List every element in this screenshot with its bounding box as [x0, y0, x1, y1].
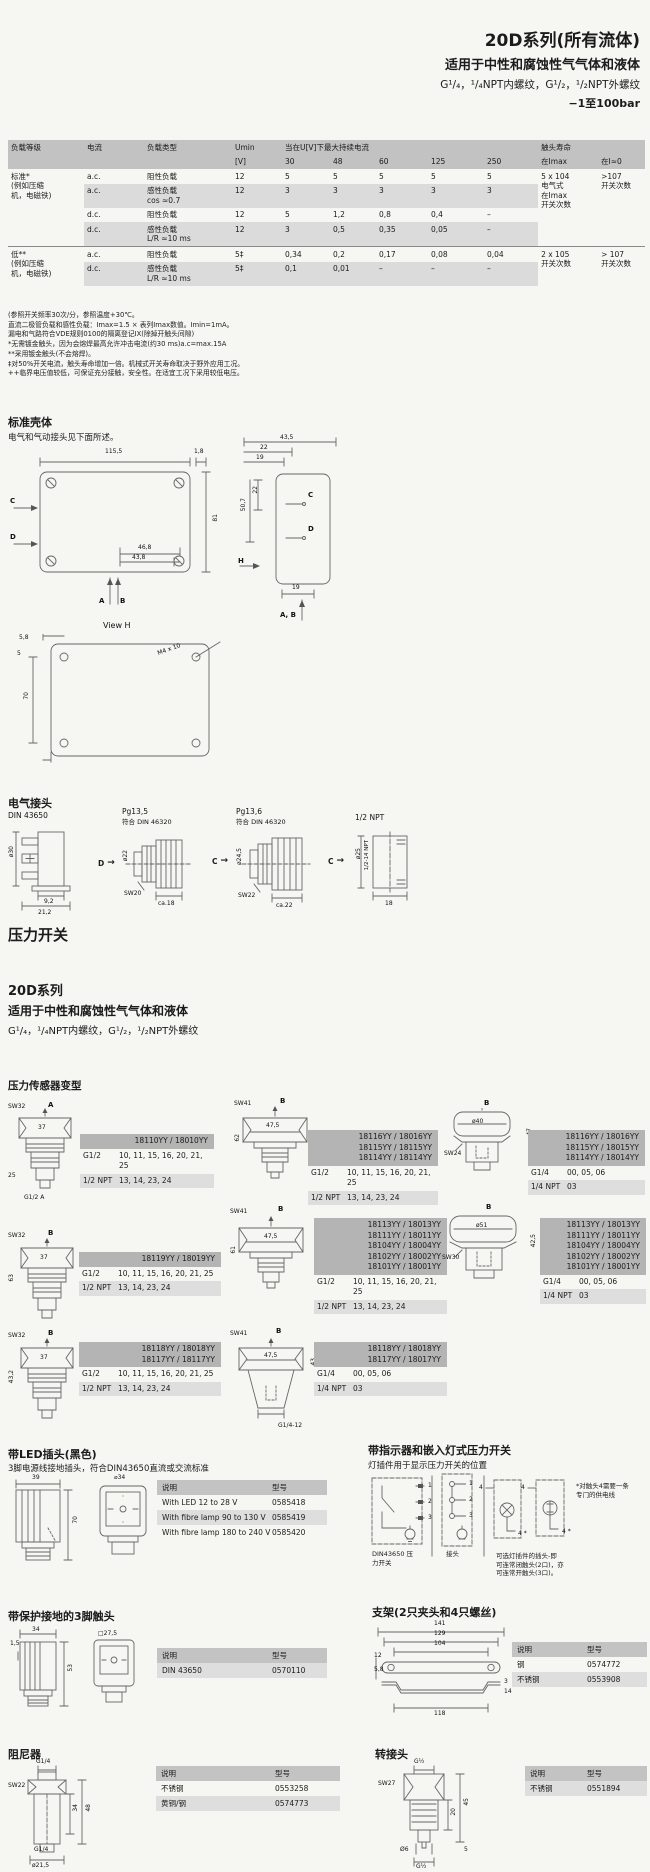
- thread-label: 1/4 NPT: [531, 1182, 567, 1193]
- dim: 53: [67, 1664, 74, 1672]
- bracket-heading: 支架(2只夹头和4只螺丝): [372, 1604, 496, 1620]
- range-codes: 13, 14, 23, 24: [119, 1176, 171, 1187]
- thread-label: 1/4 NPT: [317, 1384, 353, 1395]
- variant-row: 1/2 NPT13, 14, 23, 24: [79, 1281, 221, 1296]
- pressure-switch-heading: 压力开关: [8, 924, 68, 945]
- cell: 3: [330, 184, 376, 208]
- led-plug-drawing: 39 ⌀34 70: [8, 1474, 158, 1574]
- led-plug-table: 说明型号 With LED 12 to 28 V0585418 With fib…: [157, 1480, 327, 1540]
- variant-row: G1/210, 11, 15, 16, 20, 21, 25: [314, 1275, 447, 1300]
- footnote: 漏电和气路符合VDE规则0100的隔离登记IX(除掉开触头间隙): [8, 330, 244, 340]
- cell: 5: [376, 169, 428, 184]
- cell: –: [484, 222, 538, 247]
- sensor-variant-3-drawing: B ø40 SW24 47: [444, 1100, 532, 1186]
- cell: 5 x 104 电气式 在Imax 开关次数: [538, 169, 598, 247]
- thread-label: 1/2 NPT: [317, 1302, 353, 1313]
- cell: a.c.: [84, 247, 144, 262]
- dim: 63: [8, 1274, 15, 1282]
- table-header: 说明型号: [512, 1642, 647, 1657]
- pin-label: 1: [469, 1480, 473, 1487]
- col-current: 电流: [84, 140, 144, 169]
- dim: 1/2-14 NPT: [364, 840, 371, 870]
- table-header: 说明型号: [157, 1648, 327, 1663]
- connector-pg136-drawing: Pg13,6 符合 DIN 46320 ø24,5 SW22 ca.22: [236, 808, 324, 916]
- indicator-note-supply: *对触头4需要一条 专门的供电线: [576, 1482, 648, 1499]
- right-arrow-icon: [107, 858, 115, 868]
- dim: 22: [252, 486, 259, 494]
- part-number: 0553258: [275, 1784, 335, 1794]
- cell: 0,4: [428, 208, 484, 223]
- thread-label: G1/2: [82, 1369, 118, 1380]
- dim: 45: [463, 1798, 470, 1806]
- footnote: 直流二极管负载和感性负载：Imax=1.5 × 表列Imax数值。Imin=1m…: [8, 321, 244, 331]
- connector-title: DIN 43650: [8, 812, 48, 819]
- range-codes: 10, 11, 15, 16, 20, 21, 25: [119, 1151, 214, 1172]
- pin-label: 1: [428, 1482, 432, 1489]
- housing-side-drawing: 43,5 22 19 22 50,7 C D H 19 A, B: [238, 434, 350, 626]
- dim: 22: [260, 444, 268, 451]
- cell: 感性负载 L/R ≈10 ms: [144, 262, 232, 286]
- pin-label: 3: [469, 1512, 473, 1519]
- cell: –: [428, 262, 484, 286]
- footnote: **采用镀金触头(不会熔焊)。: [8, 350, 244, 360]
- dim: ⌀34: [114, 1474, 125, 1481]
- dim: 47,5: [264, 1233, 277, 1240]
- sensor-variant-7-drawing: SW32 B 37 43,2: [8, 1330, 84, 1436]
- range-codes: 13, 14, 23, 24: [118, 1283, 170, 1294]
- dim: SW20: [124, 890, 141, 897]
- dim: 141: [434, 1620, 445, 1627]
- dim: 18: [385, 900, 393, 907]
- part-number: 0574773: [275, 1799, 335, 1809]
- connector-title: Pg13,5: [122, 808, 148, 815]
- pin-label: 4 *: [518, 1530, 527, 1537]
- pin-label: 4: [479, 1484, 483, 1491]
- dim: ø30: [8, 846, 15, 857]
- cell: 12: [232, 222, 282, 247]
- cell: –: [484, 208, 538, 223]
- cell: 5‡: [232, 247, 282, 262]
- dim: SW22: [8, 1782, 25, 1789]
- section-label: A: [99, 598, 104, 605]
- dim: □27,5: [98, 1630, 117, 1637]
- dim: ø21,5: [32, 1862, 49, 1869]
- section-label: A, B: [280, 612, 296, 619]
- range-codes: 03: [579, 1291, 589, 1302]
- cell: 5: [282, 169, 330, 184]
- cell: 3: [376, 184, 428, 208]
- dim: 50,7: [240, 498, 247, 511]
- dim: 19: [292, 584, 300, 591]
- desc: 黄铜/钢: [161, 1799, 275, 1809]
- col-max-current: 当在U[V]下最大持续电流: [282, 140, 538, 155]
- col-contact-life: 触头寿命: [538, 140, 598, 155]
- indicator-note-contacts: 可选灯插件的插头-即 可连常闭触头(2口)，亦 可连常开触头(3口)。: [496, 1552, 608, 1578]
- model-numbers: 18110YY / 18010YY: [80, 1134, 214, 1149]
- cell: 12: [232, 208, 282, 223]
- variant-row: G1/400, 05, 06: [528, 1166, 645, 1181]
- port-label: B: [276, 1328, 281, 1335]
- dim: 37: [38, 1124, 46, 1131]
- dim: G½: [414, 1758, 424, 1765]
- cell: 3: [282, 222, 330, 247]
- col-v48: 48: [330, 155, 376, 170]
- cell: –: [376, 262, 428, 286]
- pin-label: 4 *: [562, 1528, 571, 1535]
- dim: 129: [434, 1630, 445, 1637]
- variant-row: 1/2 NPT13, 14, 23, 24: [308, 1191, 438, 1206]
- page-title: 20D系列(所有流体): [440, 26, 640, 51]
- thread-label: 1/2 NPT: [82, 1384, 118, 1395]
- pin-label: 2: [469, 1496, 473, 1503]
- page-subtitle: 适用于中性和腐蚀性气气体和液体: [440, 54, 640, 73]
- dim: G1/4: [34, 1846, 48, 1853]
- dim: 70: [23, 692, 30, 700]
- damper-table: 说明型号 不锈钢0553258 黄铜/钢0574773: [156, 1766, 340, 1811]
- connector-pg135-drawing: Pg13,5 符合 DIN 46320 ø22 SW20 ca.18: [122, 808, 210, 916]
- desc: With fibre lamp 90 to 130 V: [162, 1513, 272, 1523]
- variant-row: G1/210, 11, 15, 16, 20, 21, 25: [79, 1367, 221, 1382]
- dim: 48: [85, 1804, 92, 1812]
- indicator-label-switch: DIN43650 压 力开关: [372, 1550, 430, 1567]
- col-desc: 说明: [162, 1483, 272, 1493]
- cell: > 107 开关次数: [598, 247, 645, 286]
- variant-row: 1/4 NPT03: [540, 1289, 646, 1304]
- table-row: 不锈钢0551894: [525, 1781, 647, 1796]
- header-spacer: [598, 140, 645, 155]
- section-label: C: [212, 857, 218, 866]
- dim: 14: [504, 1688, 512, 1695]
- cell: 阻性负载: [144, 208, 232, 223]
- port-label: B: [280, 1098, 285, 1105]
- variant-row: G1/210, 11, 15, 16, 20, 21, 25: [79, 1267, 221, 1282]
- pressure-range: −1至100bar: [440, 95, 640, 111]
- desc: 钢: [517, 1660, 587, 1670]
- variant-5-table: 18113YY / 18013YY 18111YY / 18011YY 1810…: [314, 1218, 447, 1314]
- dim: G1/4: [36, 1758, 50, 1765]
- ground-contact-table: 说明型号 DIN 436500570110: [157, 1648, 327, 1678]
- cell: 5: [484, 169, 538, 184]
- table-row: 黄铜/钢0574773: [156, 1796, 340, 1811]
- led-plug-heading: 带LED插头(黑色): [8, 1446, 97, 1462]
- dim: ø40: [472, 1118, 483, 1125]
- dim: 118: [434, 1710, 445, 1717]
- dim: 46,8: [138, 544, 151, 551]
- sensor-variant-1-drawing: SW32 A 37 25 G1/2 A: [8, 1100, 82, 1210]
- dim: 3: [504, 1678, 508, 1685]
- cell: 2 x 105 开关次数: [538, 247, 598, 286]
- section-label: C: [308, 492, 313, 499]
- housing-sub: 电气和气动接头见下面所述。: [8, 431, 119, 443]
- range-codes: 10, 11, 15, 16, 20, 21, 25: [353, 1277, 447, 1298]
- variants-heading: 压力传感器变型: [8, 1078, 82, 1093]
- series-title: 20D系列: [8, 980, 63, 999]
- thread-label: 1/2 NPT: [82, 1283, 118, 1294]
- dim: 81: [212, 514, 219, 522]
- col-desc: 说明: [517, 1645, 587, 1655]
- part-number: 0570110: [272, 1666, 322, 1676]
- section-label: H: [238, 558, 244, 565]
- dim: 62: [234, 1134, 241, 1142]
- cell: 0,01: [330, 262, 376, 286]
- thread-label: G1/2: [317, 1277, 353, 1298]
- dim: 43,2: [8, 1370, 15, 1383]
- col-v60: 60: [376, 155, 428, 170]
- range-codes: 13, 14, 23, 24: [347, 1193, 399, 1204]
- col-v250: 250: [484, 155, 538, 170]
- part-number: 0553908: [587, 1675, 642, 1685]
- footnote: (参照开关频率30次/分，参照温度+30℃。: [8, 311, 244, 321]
- dim: 61: [230, 1246, 237, 1254]
- desc: With LED 12 to 28 V: [162, 1498, 272, 1508]
- table-header: 说明型号: [157, 1480, 327, 1495]
- indicator-heading: 带指示器和嵌入灯式压力开关: [368, 1442, 511, 1458]
- cell: 低** (例如压缩 机，电磁铁): [8, 247, 84, 286]
- dim: G½: [416, 1863, 426, 1870]
- range-codes: 10, 11, 15, 16, 20, 21, 25: [347, 1168, 438, 1189]
- table-row: 标准* (例如压缩 机，电磁铁) a.c. 阻性负载 12 5 5 5 5 5 …: [8, 169, 645, 184]
- cell: 0,5: [330, 222, 376, 247]
- led-plug-sub: 3脚电源线接地插头，符合DIN43650直流或交流标准: [8, 1462, 209, 1474]
- col-desc: 说明: [161, 1769, 275, 1779]
- desc: 不锈钢: [517, 1675, 587, 1685]
- variant-row: 1/4 NPT03: [528, 1180, 645, 1195]
- thread-types: G¹/₄，¹/₄NPT内螺纹，G¹/₂，¹/₂NPT外螺纹: [440, 77, 640, 92]
- dim: 115,5: [105, 448, 122, 455]
- dim: SW22: [238, 892, 255, 899]
- sensor-variant-6-drawing: B ø51 SW30 42,5: [442, 1204, 536, 1296]
- sensor-variant-4-drawing: SW32 B 37 63: [8, 1230, 84, 1336]
- section-label: D: [10, 534, 16, 541]
- right-arrow-icon: [337, 856, 345, 866]
- view-title: View H: [103, 622, 131, 629]
- dim: 47,5: [264, 1352, 277, 1359]
- dim: Ø6: [400, 1846, 409, 1853]
- variant-4-table: 18119YY / 18019YY G1/210, 11, 15, 16, 20…: [79, 1252, 221, 1296]
- cell: 5: [428, 169, 484, 184]
- dim: ø22: [122, 850, 129, 861]
- model-numbers: 18113YY / 18013YY 18111YY / 18011YY 1810…: [314, 1218, 447, 1275]
- cell: 3: [484, 184, 538, 208]
- dim: 34: [32, 1626, 40, 1633]
- table-row: With fibre lamp 90 to 130 V0585419: [157, 1510, 327, 1525]
- variant-1-table: 18110YY / 18010YY G1/210, 11, 15, 16, 20…: [80, 1134, 214, 1188]
- range-codes: 03: [567, 1182, 577, 1193]
- connector-din43650-drawing: DIN 43650 ø30 9,2 21,2: [8, 812, 106, 924]
- part-number: 0574772: [587, 1660, 642, 1670]
- dim: 43,8: [132, 554, 145, 561]
- thread-label: G1/4: [317, 1369, 353, 1380]
- indicator-label-plug: 接头: [446, 1550, 459, 1559]
- section-label: C: [328, 857, 334, 866]
- series-subtitle: 适用于中性和腐蚀性气气体和液体: [8, 1002, 188, 1019]
- variant-row: 1/2 NPT13, 14, 23, 24: [79, 1382, 221, 1397]
- col-at-i0: 在I≈0: [598, 155, 645, 170]
- thread-label: G1/4: [543, 1277, 579, 1288]
- range-codes: 13, 14, 23, 24: [353, 1302, 405, 1313]
- cell: d.c.: [84, 208, 144, 223]
- cell: 感性负载 cos ≈0.7: [144, 184, 232, 208]
- adapter-drawing: G½ SW27 45 20 Ø6 5 G½: [378, 1758, 478, 1870]
- model-numbers: 18113YY / 18013YY 18111YY / 18011YY 1810…: [540, 1218, 646, 1275]
- col-desc: 说明: [162, 1651, 272, 1661]
- section-label: D: [98, 859, 104, 868]
- cell: 0,04: [484, 247, 538, 262]
- port-label: B: [484, 1100, 489, 1107]
- port-label: B: [486, 1204, 491, 1211]
- dim: 25: [8, 1172, 16, 1179]
- dim: 19: [256, 454, 264, 461]
- dim: 37: [40, 1354, 48, 1361]
- dim: SW41: [230, 1208, 247, 1215]
- dim: 21,2: [38, 909, 51, 916]
- cell: 阻性负载: [144, 247, 232, 262]
- cell: 阻性负载: [144, 169, 232, 184]
- variant-8-table: 18118YY / 18018YY 18117YY / 18017YY G1/4…: [314, 1342, 447, 1396]
- range-codes: 00, 05, 06: [579, 1277, 617, 1288]
- range-codes: 10, 11, 15, 16, 20, 21, 25: [118, 1269, 213, 1280]
- table-row: With LED 12 to 28 V0585418: [157, 1495, 327, 1510]
- cell: 12: [232, 169, 282, 184]
- model-numbers: 18118YY / 18018YY 18117YY / 18017YY: [314, 1342, 447, 1367]
- datasheet-page: 20D系列(所有流体) 适用于中性和腐蚀性气气体和液体 G¹/₄，¹/₄NPT内…: [0, 0, 650, 1872]
- table-header: 说明型号: [525, 1766, 647, 1781]
- cell: d.c.: [84, 222, 144, 247]
- dim: ø25: [355, 848, 362, 859]
- variant-row: G1/400, 05, 06: [540, 1275, 646, 1290]
- cell: 0,35: [376, 222, 428, 247]
- variant-3-table: 18116YY / 18016YY 18115YY / 18015YY 1811…: [528, 1130, 645, 1195]
- dim: G1/2 A: [24, 1194, 44, 1201]
- cell: >107 开关次数: [598, 169, 645, 247]
- table-header-row: 负载等级 电流 负载类型 Umin 当在U[V]下最大持续电流 触头寿命: [8, 140, 645, 155]
- col-part: 型号: [275, 1769, 335, 1779]
- cell: 0,1: [282, 262, 330, 286]
- col-v125: 125: [428, 155, 484, 170]
- dim: SW24: [444, 1150, 461, 1157]
- table-row: 低** (例如压缩 机，电磁铁) a.c. 阻性负载 5‡ 0,34 0,2 0…: [8, 247, 645, 262]
- dim: ø24,5: [236, 848, 243, 865]
- section-arrow-c2: C: [328, 856, 344, 866]
- thread-label: G1/2: [82, 1269, 118, 1280]
- col-v30: 30: [282, 155, 330, 170]
- variant-6-table: 18113YY / 18013YY 18111YY / 18011YY 1810…: [540, 1218, 646, 1304]
- pin-label: 3: [428, 1514, 432, 1521]
- dim: 43,5: [280, 434, 293, 441]
- bracket-drawing: 141 129 104 12 5,8 3 14 118: [374, 1620, 516, 1720]
- section-label: B: [120, 598, 125, 605]
- adapter-table: 说明型号 不锈钢0551894: [525, 1766, 647, 1796]
- dim: 104: [434, 1640, 445, 1647]
- dim: 1,8: [194, 448, 204, 455]
- section-arrow-d: D: [98, 858, 115, 868]
- cell: 感性负载 L/R ≈10 ms: [144, 222, 232, 247]
- desc: DIN 43650: [162, 1666, 272, 1676]
- thread-label: 1/4 NPT: [543, 1291, 579, 1302]
- part-number: 0585419: [272, 1513, 322, 1523]
- port-label: B: [278, 1206, 283, 1213]
- cell: a.c.: [84, 169, 144, 184]
- table-row: 不锈钢0553258: [156, 1781, 340, 1796]
- dim: SW27: [378, 1780, 395, 1787]
- variant-7-table: 18118YY / 18018YY 18117YY / 18117YY G1/2…: [79, 1342, 221, 1396]
- col-umin-unit: [V]: [232, 155, 282, 170]
- variant-row: G1/210, 11, 15, 16, 20, 21, 25: [80, 1149, 214, 1174]
- model-numbers: 18118YY / 18018YY 18117YY / 18117YY: [79, 1342, 221, 1367]
- col-umin: Umin: [232, 140, 282, 155]
- desc: 不锈钢: [530, 1784, 587, 1794]
- view-h-drawing: View H 5,8 5 70 M4 x 10: [15, 622, 237, 770]
- connectors-heading: 电气接头: [8, 795, 52, 811]
- col-load-type: 负载类型: [144, 140, 232, 169]
- desc: With fibre lamp 180 to 240 V: [162, 1528, 272, 1538]
- section-arrow-c1: C: [212, 856, 228, 866]
- dim: 12: [374, 1652, 382, 1659]
- col-part: 型号: [272, 1483, 322, 1493]
- series-threads: G¹/₄，¹/₄NPT内螺纹，G¹/₂，¹/₂NPT外螺纹: [8, 1022, 198, 1037]
- pin-label: 4: [521, 1484, 525, 1491]
- col-part: 型号: [587, 1645, 642, 1655]
- connector-title: Pg13,6: [236, 808, 262, 815]
- section-label: C: [10, 498, 15, 505]
- dim: G1/4-12: [278, 1422, 302, 1429]
- dim: SW41: [230, 1330, 247, 1337]
- dim: 39: [32, 1474, 40, 1481]
- cell: a.c.: [84, 184, 144, 208]
- table-row: DIN 436500570110: [157, 1663, 327, 1678]
- range-codes: 10, 11, 15, 16, 20, 21, 25: [118, 1369, 213, 1380]
- connector-title: 1/2 NPT: [355, 814, 384, 821]
- range-codes: 00, 05, 06: [567, 1168, 605, 1179]
- cell: 5: [282, 208, 330, 223]
- sensor-variant-8-drawing: SW41 B 47,5 43 G1/4-12: [230, 1328, 316, 1432]
- dim: ca.22: [276, 902, 293, 909]
- ground-contact-heading: 带保护接地的3脚触头: [8, 1608, 115, 1624]
- dim: 20: [450, 1808, 457, 1816]
- indicator-sub: 灯插件用于显示压力开关的位置: [368, 1459, 487, 1471]
- dim: 5: [17, 650, 21, 657]
- col-part: 型号: [272, 1651, 322, 1661]
- range-codes: 03: [353, 1384, 363, 1395]
- load-ratings-table: 负载等级 电流 负载类型 Umin 当在U[V]下最大持续电流 触头寿命 [V]…: [8, 140, 645, 286]
- thread-label: 1/2 NPT: [83, 1176, 119, 1187]
- range-codes: 13, 14, 23, 24: [118, 1384, 170, 1395]
- cell: 5‡: [232, 262, 282, 286]
- cell: 0,08: [428, 247, 484, 262]
- model-numbers: 18116YY / 18016YY 18115YY / 18015YY 1811…: [528, 1130, 645, 1166]
- dim: 5,8: [19, 634, 29, 641]
- variant-row: 1/4 NPT03: [314, 1382, 447, 1397]
- col-desc: 说明: [530, 1769, 587, 1779]
- thread-label: G1/2: [83, 1151, 119, 1172]
- variant-row: G1/210, 11, 15, 16, 20, 21, 25: [308, 1166, 438, 1191]
- connector-standard: 符合 DIN 46320: [236, 819, 286, 826]
- dim: 1,5: [10, 1640, 20, 1647]
- bracket-table: 说明型号 钢0574772 不锈钢0553908: [512, 1642, 647, 1687]
- footnote: *无需镀金触头，因为会熔焊最高允许冲击电流(约30 ms)a.c=max.15A: [8, 340, 244, 350]
- dim: 5,8: [374, 1666, 384, 1673]
- cell: 0,8: [376, 208, 428, 223]
- sensor-variant-2-drawing: SW41 B 47,5 62: [234, 1098, 316, 1194]
- table-row: With fibre lamp 180 to 240 V0585420: [157, 1525, 327, 1540]
- cell: 3: [428, 184, 484, 208]
- cell: 3: [282, 184, 330, 208]
- model-numbers: 18116YY / 18016YY 18115YY / 18115YY 1811…: [308, 1130, 438, 1166]
- dim: 5: [464, 1846, 468, 1853]
- cell: 标准* (例如压缩 机，电磁铁): [8, 169, 84, 247]
- damper-drawing: G1/4 SW22 34 48 G1/4 ø21,5: [8, 1758, 100, 1870]
- dim: 47,5: [266, 1122, 279, 1129]
